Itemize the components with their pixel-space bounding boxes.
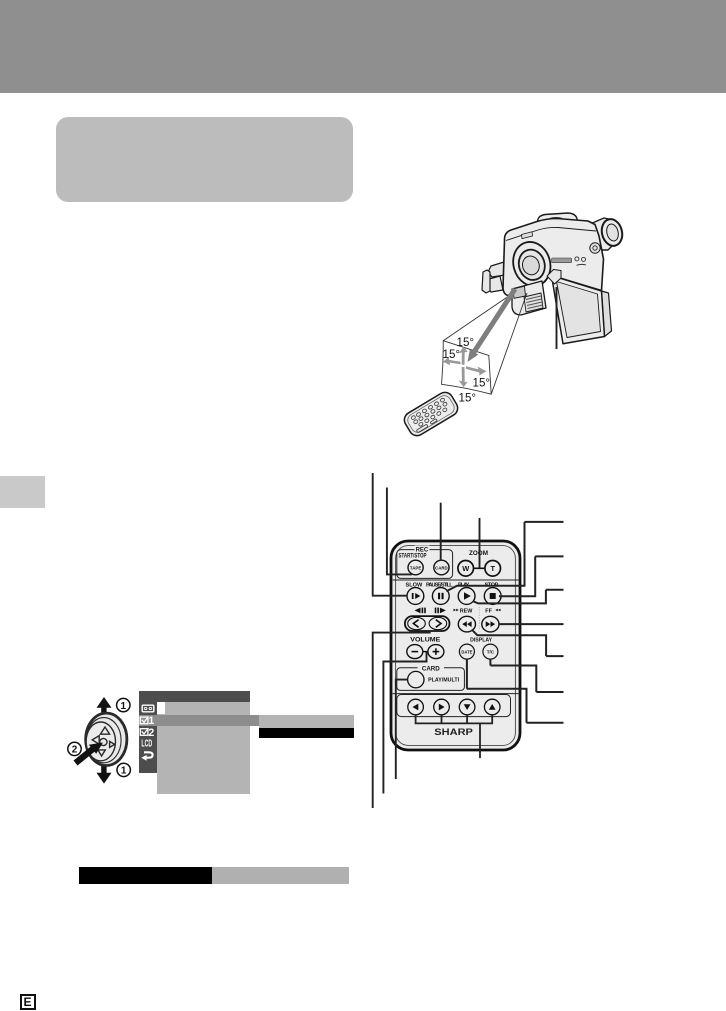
svg-text:15°: 15° (473, 377, 491, 390)
svg-text:W: W (462, 564, 469, 573)
svg-text:T: T (490, 564, 495, 573)
svg-text:LCD: LCD (141, 739, 152, 750)
svg-text:SHARP: SHARP (434, 727, 473, 737)
svg-text:15°: 15° (459, 392, 477, 405)
svg-text:DISPLAY: DISPLAY (470, 638, 493, 644)
svg-text:PLAY/MULTI: PLAY/MULTI (428, 678, 460, 684)
svg-text:FF: FF (485, 609, 492, 615)
svg-text:START/STOP: START/STOP (399, 553, 427, 560)
svg-text:1: 1 (148, 715, 154, 727)
svg-text:T/C: T/C (487, 650, 495, 655)
svg-text:2: 2 (72, 745, 78, 756)
svg-text:CARD: CARD (422, 665, 440, 672)
svg-text:CARD: CARD (435, 565, 448, 570)
svg-text:2: 2 (148, 727, 154, 739)
svg-text:VOLUME: VOLUME (410, 637, 440, 644)
svg-text:1: 1 (121, 701, 127, 712)
svg-text:15°: 15° (443, 348, 461, 361)
svg-text:ZOOM: ZOOM (469, 550, 488, 557)
svg-text:REW: REW (460, 609, 473, 615)
svg-text:TAPE: TAPE (410, 565, 421, 570)
svg-text:DATE: DATE (461, 649, 472, 654)
svg-text:1: 1 (121, 766, 127, 777)
